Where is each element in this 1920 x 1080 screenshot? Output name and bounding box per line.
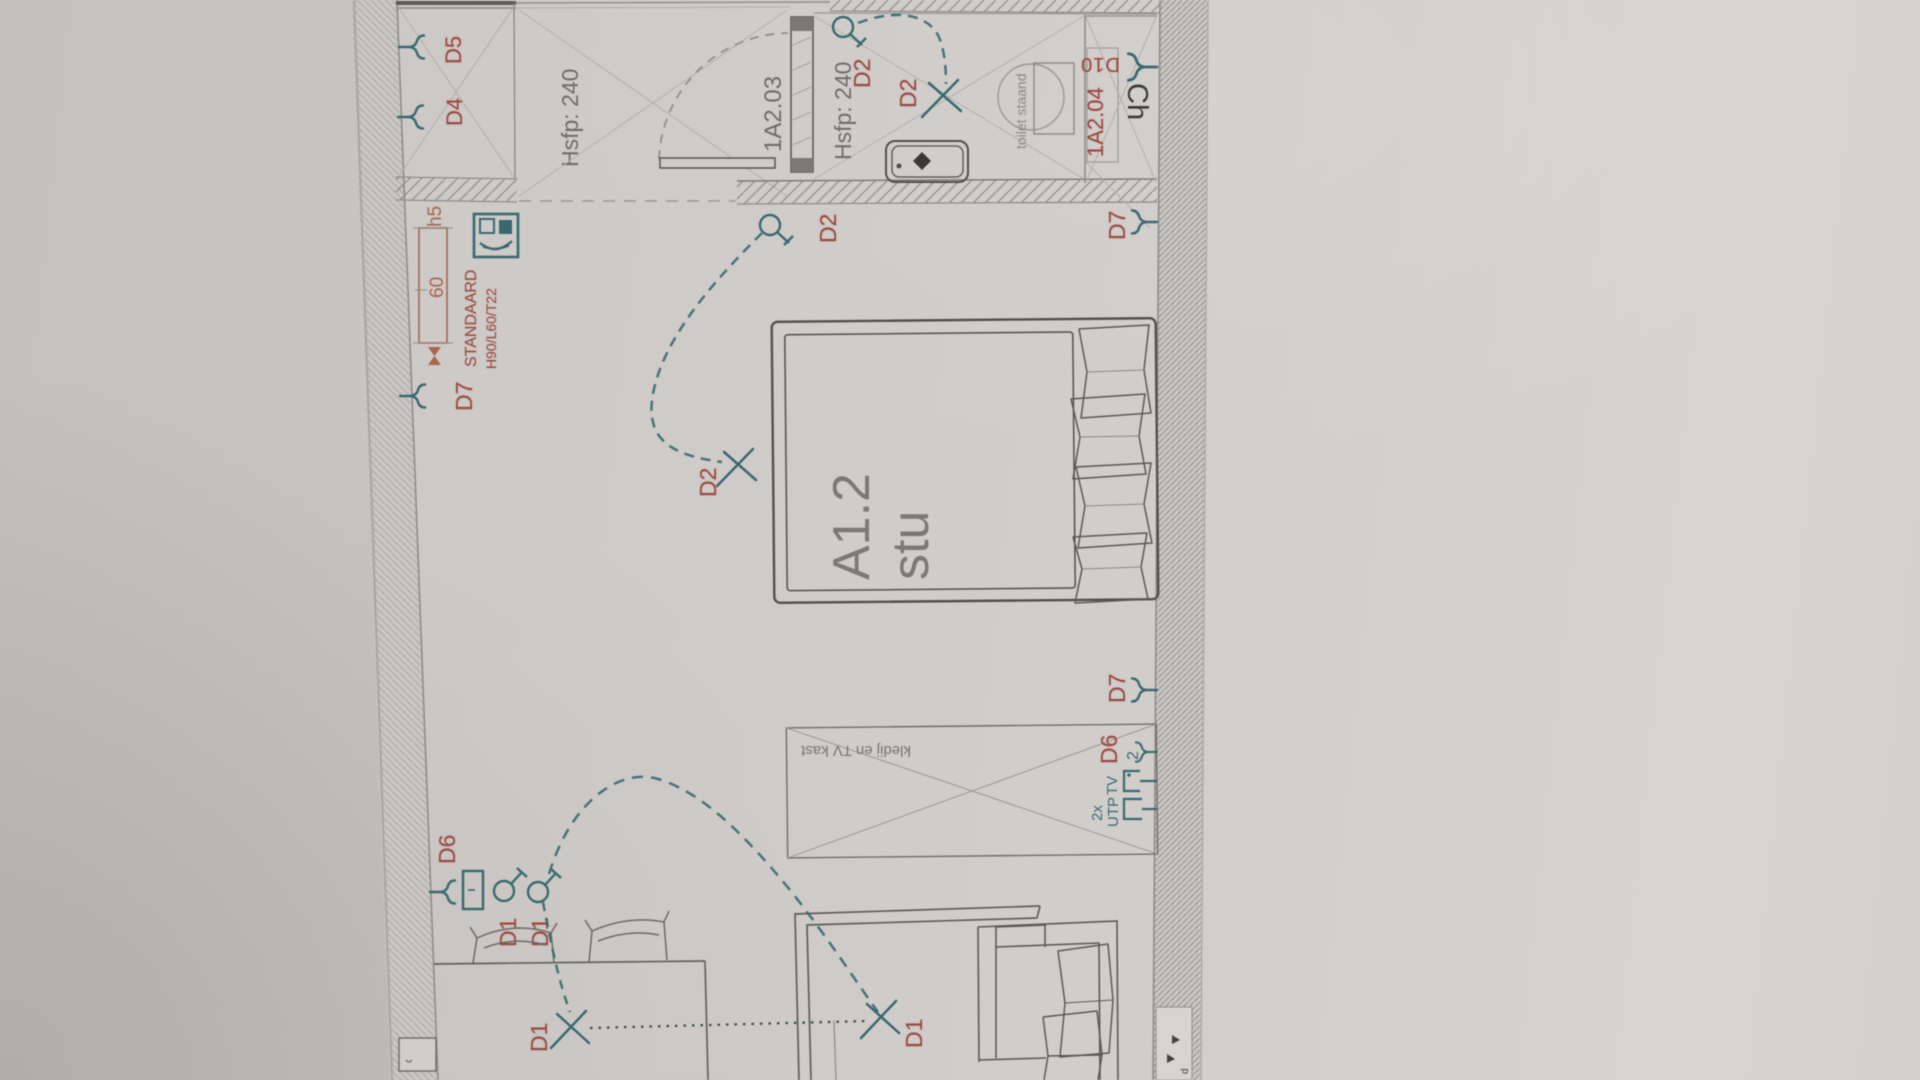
- svg-text:d: d: [1180, 1068, 1191, 1074]
- svg-text:2: 2: [1125, 751, 1142, 760]
- svg-text:D5: D5: [441, 36, 466, 64]
- svg-text:h5: h5: [425, 206, 446, 227]
- svg-text:D4: D4: [442, 98, 467, 126]
- svg-text:A1.2: A1.2: [823, 473, 881, 580]
- svg-text:D7: D7: [1104, 674, 1130, 703]
- svg-text:kledij en TV kast: kledij en TV kast: [800, 742, 911, 759]
- svg-text:D1: D1: [901, 1019, 927, 1048]
- svg-text:D2: D2: [849, 59, 875, 88]
- svg-text:Ch: Ch: [1121, 83, 1153, 120]
- svg-text:Hsfp: 240: Hsfp: 240: [557, 69, 583, 167]
- svg-text:D7: D7: [451, 382, 477, 411]
- svg-text:TV: TV: [1104, 776, 1121, 795]
- svg-text:D6: D6: [1096, 735, 1122, 764]
- svg-text:D7: D7: [1104, 211, 1130, 240]
- svg-text:D2: D2: [695, 468, 721, 497]
- svg-text:60: 60: [427, 277, 448, 298]
- svg-text:UTP: UTP: [1105, 797, 1122, 827]
- svg-text:D1: D1: [526, 1023, 552, 1052]
- svg-text:D6: D6: [434, 835, 460, 864]
- svg-text:1A2.04: 1A2.04: [1083, 87, 1108, 157]
- svg-text:1A2.03: 1A2.03: [760, 76, 787, 152]
- svg-text:stu: stu: [882, 511, 940, 580]
- svg-text:STANDAARD: STANDAARD: [463, 270, 480, 368]
- svg-text:2x: 2x: [1089, 805, 1106, 821]
- svg-text:toilet staand: toilet staand: [1013, 74, 1029, 150]
- svg-text:D10: D10: [1080, 53, 1120, 75]
- svg-text:D2: D2: [815, 214, 841, 243]
- svg-text:H90/L60/T22: H90/L60/T22: [483, 288, 499, 369]
- svg-text:D2: D2: [895, 79, 921, 108]
